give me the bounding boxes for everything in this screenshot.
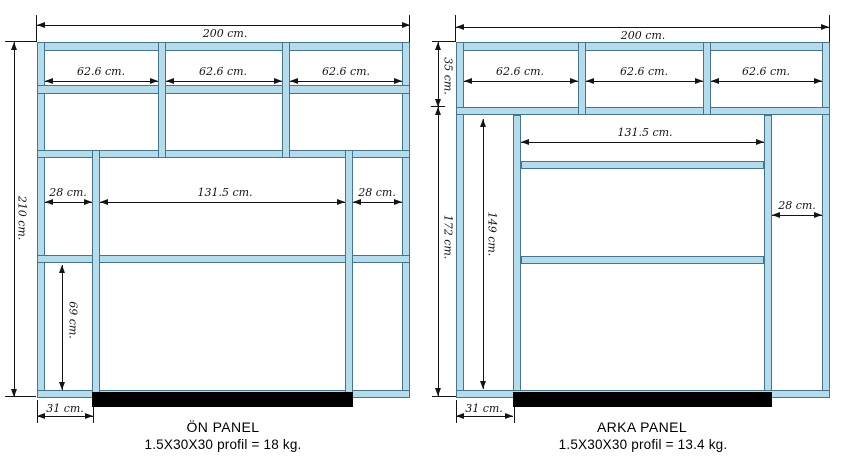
arka-post-right (764, 115, 772, 398)
on-dim-cell2-label: 62.6 cm. (199, 65, 247, 78)
on-dim-base-ext-left (37, 400, 38, 423)
on-dim-base-ext-right (93, 407, 94, 423)
on-dim-lower-line (62, 265, 63, 390)
arka-divider-top-2 (703, 42, 711, 115)
on-panel-title: ÖN PANEL (187, 419, 260, 435)
on-dim-height-label: 210 cm. (16, 196, 29, 241)
arka-dim-cell3-line (711, 81, 822, 82)
arka-dim-width-line (456, 27, 829, 28)
arka-panel-title: ARKA PANEL (597, 419, 687, 435)
on-dim-midleft-label: 28 cm. (49, 186, 87, 199)
arka-dim-cell3-label: 62.6 cm. (742, 65, 790, 78)
on-dim-base-line (37, 416, 93, 417)
on-dim-cell3-line (290, 81, 402, 82)
arka-dim-width-label: 200 cm. (621, 29, 666, 42)
arka-dim-innerheight-label: 149 cm. (486, 212, 499, 257)
arka-shelf-upper (521, 161, 764, 169)
technical-drawing-canvas: 200 cm. 210 cm. 62.6 cm. 62.6 cm. 62.6 c… (0, 0, 842, 468)
on-base-bar (92, 392, 353, 407)
arka-dim-cell1-label: 62.6 cm. (496, 65, 544, 78)
arka-dim-left-ext-bottom (432, 396, 456, 397)
arka-dim-bodyheight-label: 172 cm. (442, 215, 455, 260)
arka-dim-innerheight-line (483, 119, 484, 389)
on-dim-cell1-label: 62.6 cm. (77, 65, 125, 78)
on-dim-width-label: 200 cm. (203, 27, 248, 40)
on-dim-width-ext-left (36, 15, 37, 42)
on-dim-midright-label: 28 cm. (358, 186, 396, 199)
arka-dim-rightcol-label: 28 cm. (778, 199, 816, 212)
arka-frame-right (822, 42, 830, 398)
on-dim-midcenter-label: 131.5 cm. (197, 186, 252, 199)
arka-frame-left (456, 42, 464, 398)
arka-dim-base-label: 31 cm. (465, 402, 503, 415)
on-dim-width-line (37, 25, 410, 26)
arka-divider-top-1 (578, 42, 586, 115)
on-dim-height-ext-bottom (5, 396, 36, 397)
on-dim-midright-line (353, 202, 402, 203)
on-panel-subtitle: 1.5X30X30 profil = 18 kg. (145, 437, 302, 452)
arka-dim-midspan-label: 131.5 cm. (617, 126, 672, 139)
arka-panel-subtitle: 1.5X30X30 profil = 13.4 kg. (559, 437, 728, 452)
arka-dim-cell2-line (586, 81, 703, 82)
arka-dim-base-ext-left (456, 400, 457, 423)
arka-dim-bodyheight-line (438, 107, 439, 396)
arka-rail-top (456, 107, 830, 115)
on-dim-midleft-line (45, 202, 92, 203)
on-dim-cell2-line (166, 81, 282, 82)
on-divider-top-2 (282, 42, 290, 158)
on-dim-cell1-line (45, 81, 158, 82)
arka-shelf-lower (521, 256, 764, 264)
arka-post-left (513, 115, 521, 398)
arka-dim-width-ext-right (829, 15, 830, 42)
on-dim-base-label: 31 cm. (46, 402, 84, 415)
on-frame-right (402, 42, 410, 398)
arka-dim-cell1-line (464, 81, 578, 82)
arka-frame-top (456, 42, 830, 51)
on-dim-width-ext-right (409, 15, 410, 42)
arka-dim-topheight-line (438, 42, 439, 107)
arka-dim-base-line (456, 416, 513, 417)
on-post-left (92, 150, 100, 398)
arka-dim-midspan-line (521, 142, 764, 143)
on-post-right (345, 150, 353, 398)
on-dim-height-ext-top (5, 41, 36, 42)
arka-dim-cell2-label: 62.6 cm. (620, 65, 668, 78)
on-divider-top-1 (158, 42, 166, 158)
arka-dim-topheight-label: 35 cm. (442, 57, 455, 95)
on-dim-lower-label: 69 cm. (67, 301, 80, 339)
on-dim-midcenter-line (100, 202, 345, 203)
on-rail-upper (37, 85, 410, 94)
arka-dim-rightcol-line (772, 215, 822, 216)
arka-dim-base-ext-right (514, 407, 515, 423)
on-dim-cell3-label: 62.6 cm. (322, 65, 370, 78)
arka-base-bar (513, 392, 772, 407)
on-frame-top (37, 42, 410, 51)
on-frame-left (37, 42, 45, 398)
